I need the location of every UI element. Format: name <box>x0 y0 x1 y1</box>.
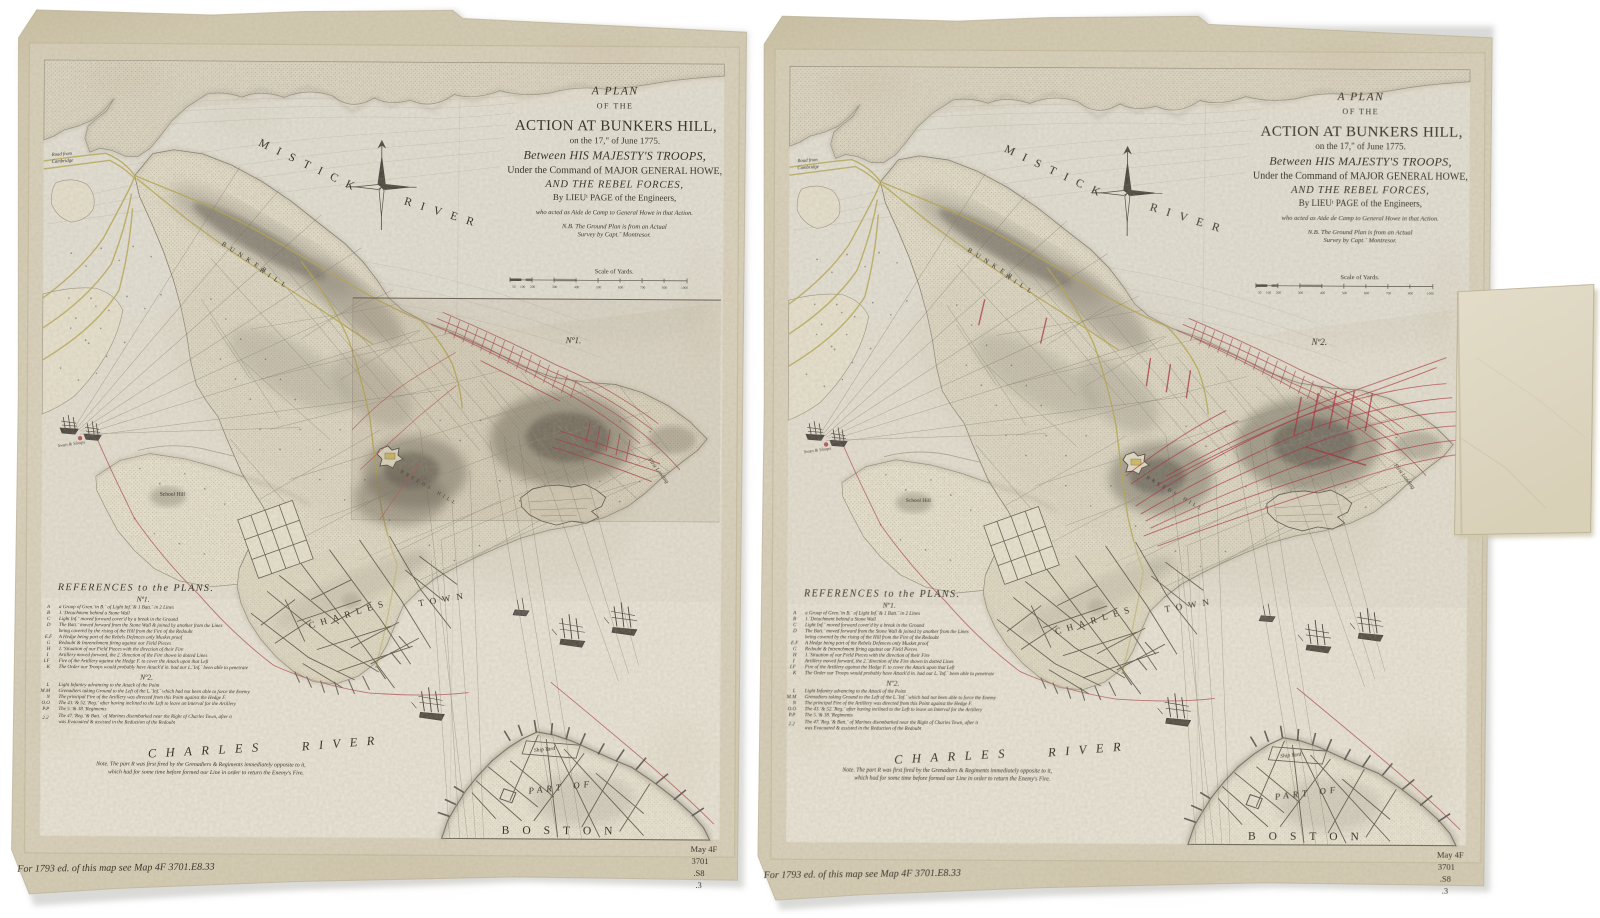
svg-text:Nº1.: Nº1. <box>565 335 582 345</box>
svg-text:Nº2.: Nº2. <box>1311 337 1328 347</box>
